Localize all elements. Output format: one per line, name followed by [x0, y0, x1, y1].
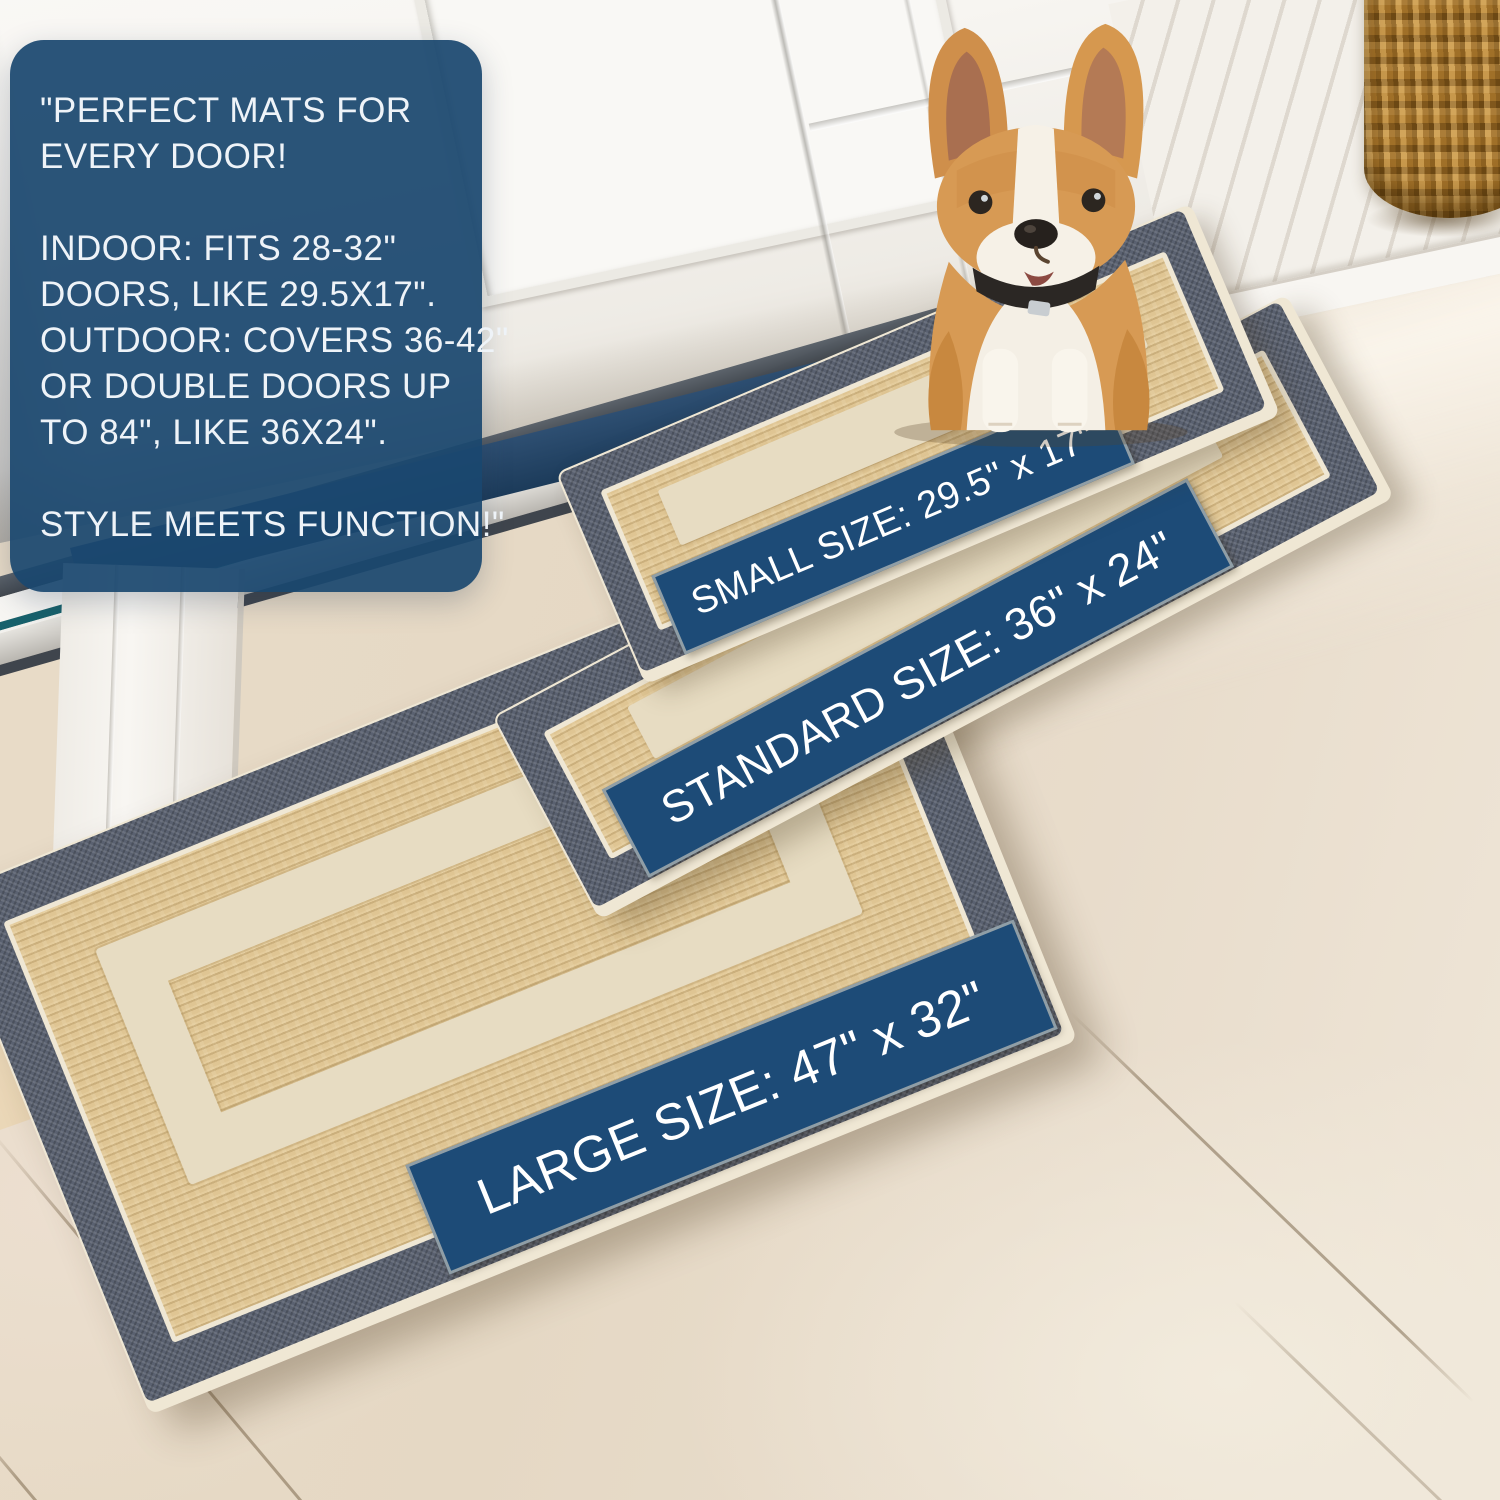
info-text-line: STYLE MEETS FUNCTION!" [40, 502, 472, 548]
corgi-dog-illustration [856, 12, 1216, 448]
info-text-line: EVERY DOOR! [40, 134, 472, 180]
tile-grout-line [0, 1420, 240, 1500]
info-text-line: "PERFECT MATS FOR [40, 88, 472, 134]
info-text-line: DOORS, LIKE 29.5X17". [40, 272, 472, 318]
tile-grout-line [1070, 1012, 1475, 1403]
dog-eye-left [969, 190, 993, 214]
dog-eye-right [1082, 188, 1106, 212]
dog-front-leg [1052, 349, 1088, 432]
wicker-basket [1364, 0, 1500, 218]
dog-front-leg [982, 349, 1018, 432]
dog-nose [1014, 219, 1058, 249]
corgi-dog [856, 12, 1216, 448]
info-text-line [40, 456, 472, 502]
info-text-line: OUTDOOR: COVERS 36-42" [40, 318, 472, 364]
tile-grout-line [1233, 1300, 1500, 1500]
doormat-product-photo: LARGE SIZE: 47" x 32" STANDARD SIZE: 36"… [0, 0, 1500, 1500]
info-text-line [40, 180, 472, 226]
info-text-line: TO 84", LIKE 36X24". [40, 410, 472, 456]
info-text-line: OR DOUBLE DOORS UP [40, 364, 472, 410]
product-info-box: "PERFECT MATS FOR EVERY DOOR! INDOOR: FI… [10, 40, 482, 592]
info-text-line: INDOOR: FITS 28-32" [40, 226, 472, 272]
